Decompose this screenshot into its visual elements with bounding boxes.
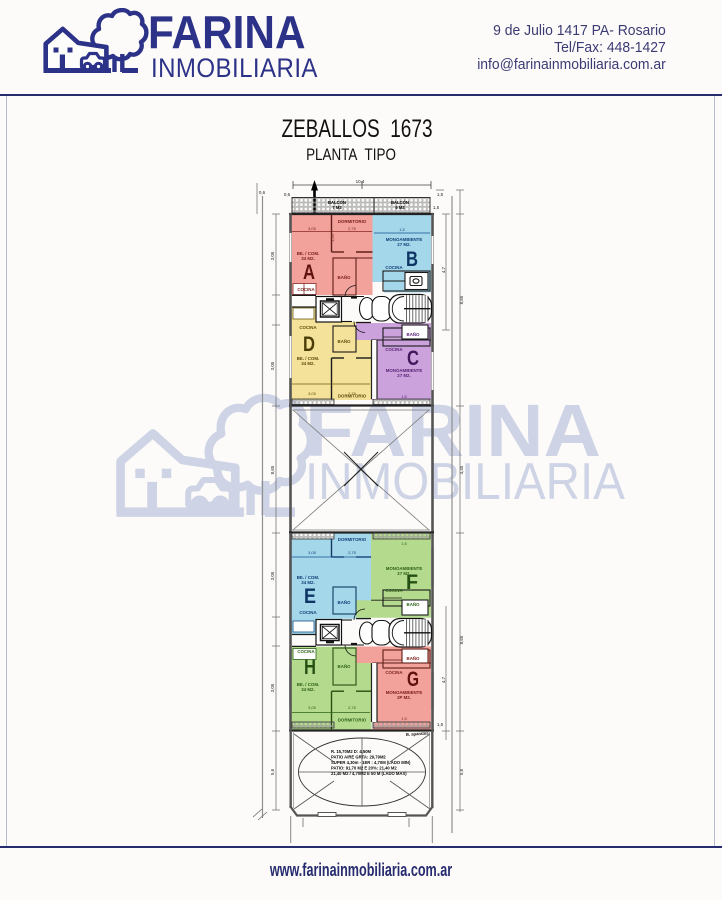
svg-text:3,05: 3,05	[270, 683, 275, 692]
svg-text:COCINA: COCINA	[385, 670, 403, 675]
svg-text:0,6: 0,6	[284, 192, 291, 197]
svg-text:COCINA: COCINA	[385, 347, 403, 352]
svg-text:3,05: 3,05	[308, 391, 317, 396]
svg-text:BAÑO: BAÑO	[407, 332, 421, 337]
svg-text:1,5: 1,5	[437, 192, 444, 197]
svg-text:1,5: 1,5	[437, 722, 444, 727]
svg-text:E: E	[304, 585, 316, 608]
svg-text:H: H	[304, 656, 316, 679]
svg-text:1,5: 1,5	[399, 227, 405, 232]
svg-text:BAÑO: BAÑO	[338, 664, 352, 669]
svg-text:7 M2: 7 M2	[332, 205, 342, 210]
svg-text:COCINA: COCINA	[385, 265, 403, 270]
svg-text:BAÑO: BAÑO	[338, 600, 352, 605]
svg-text:1,5: 1,5	[401, 716, 407, 721]
svg-text:BAÑO: BAÑO	[338, 339, 352, 344]
svg-text:8,65: 8,65	[270, 465, 275, 474]
svg-text:COCINA: COCINA	[385, 588, 403, 593]
svg-text:34 M2.: 34 M2.	[301, 361, 314, 366]
svg-text:2,75: 2,75	[348, 391, 357, 396]
svg-text:27 M2.: 27 M2.	[397, 373, 410, 378]
svg-text:3,05: 3,05	[308, 550, 317, 555]
svg-text:1,5: 1,5	[401, 541, 407, 546]
svg-text:DORMITORIO: DORMITORIO	[338, 537, 367, 542]
svg-text:2,75: 2,75	[348, 550, 357, 555]
svg-text:5,6: 5,6	[270, 768, 275, 775]
svg-text:0,6: 0,6	[259, 190, 266, 195]
svg-text:C: C	[407, 347, 419, 370]
svg-text:COCINA: COCINA	[299, 325, 317, 330]
svg-text:3,05: 3,05	[270, 251, 275, 260]
svg-text:1,50: 1,50	[330, 233, 335, 242]
svg-text:10,4: 10,4	[356, 179, 365, 184]
svg-text:3,05: 3,05	[270, 361, 275, 370]
svg-text:BAÑO: BAÑO	[407, 656, 421, 661]
svg-text:B: B	[406, 248, 418, 271]
svg-text:A: A	[303, 261, 315, 284]
svg-text:D: D	[303, 333, 315, 356]
svg-text:34 M2.: 34 M2.	[301, 687, 314, 692]
svg-text:27 M2.: 27 M2.	[397, 242, 410, 247]
svg-text:DORMITORIO: DORMITORIO	[338, 219, 367, 224]
svg-text:6 M2: 6 M2	[395, 205, 405, 210]
svg-text:B. aparatos: B. aparatos	[406, 730, 430, 737]
svg-text:21,40 M2 / 4,70M2 E 50 M (LADO: 21,40 M2 / 4,70M2 E 50 M (LADO MAX)	[331, 771, 407, 776]
svg-text:2P M2.: 2P M2.	[397, 695, 411, 700]
svg-text:8,65: 8,65	[459, 635, 464, 644]
svg-text:DORMITORIO: DORMITORIO	[338, 718, 367, 723]
svg-text:BAÑO: BAÑO	[338, 275, 352, 280]
svg-text:3,05: 3,05	[270, 571, 275, 580]
svg-text:4,45: 4,45	[459, 465, 464, 474]
svg-text:1,5: 1,5	[401, 394, 407, 399]
svg-text:5,6: 5,6	[459, 768, 464, 775]
svg-text:COCINA: COCINA	[297, 649, 315, 654]
svg-text:1,5: 1,5	[433, 205, 440, 210]
svg-text:2,75: 2,75	[348, 226, 357, 231]
svg-text:PATIO: 91,70 M2 E 20%: 21,40 M: PATIO: 91,70 M2 E 20%: 21,40 M2	[331, 766, 397, 771]
svg-text:COCINA: COCINA	[299, 610, 317, 615]
svg-text:BAÑO: BAÑO	[407, 602, 421, 607]
svg-text:3,05: 3,05	[308, 226, 317, 231]
svg-text:4,7: 4,7	[441, 266, 446, 273]
svg-text:F: F	[406, 571, 418, 594]
svg-text:R. 15,70M2 D: 4,50M: R. 15,70M2 D: 4,50M	[331, 749, 372, 754]
svg-text:4,7: 4,7	[441, 676, 446, 683]
svg-text:3,05: 3,05	[308, 705, 317, 710]
svg-text:COCINA: COCINA	[297, 287, 315, 292]
svg-text:G: G	[407, 668, 419, 691]
svg-text:2,75: 2,75	[348, 705, 357, 710]
svg-text:8,65: 8,65	[459, 295, 464, 304]
svg-text:SUPER 4,30m - 1ER : 4,70M (LAD: SUPER 4,30m - 1ER : 4,70M (LADO MIN)	[331, 760, 411, 765]
svg-text:PATIO AIRE GRTA: 29,79M2: PATIO AIRE GRTA: 29,79M2	[331, 755, 386, 760]
